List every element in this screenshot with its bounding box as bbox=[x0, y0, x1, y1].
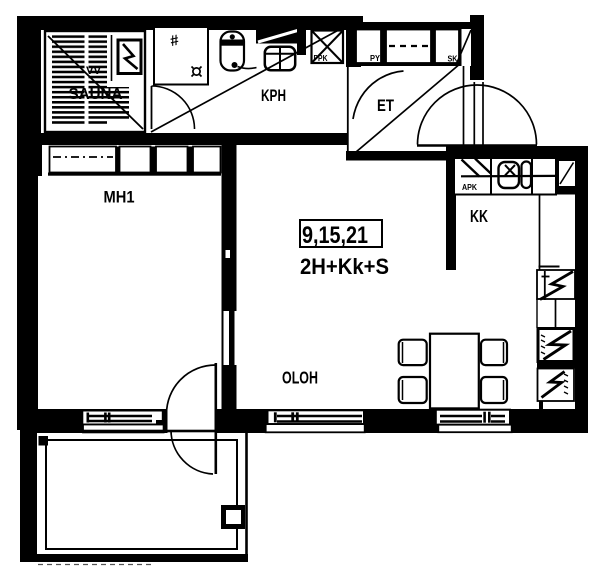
svg-text:SAUNA: SAUNA bbox=[69, 86, 123, 103]
svg-text:9,15,21: 9,15,21 bbox=[302, 222, 368, 249]
svg-text:ET: ET bbox=[377, 96, 394, 115]
svg-text:2H+Kk+S: 2H+Kk+S bbox=[300, 254, 389, 279]
svg-text:PPK: PPK bbox=[314, 54, 328, 63]
svg-text:VV: VV bbox=[86, 65, 102, 77]
svg-text:OLOH: OLOH bbox=[282, 368, 318, 388]
svg-text:SK: SK bbox=[448, 55, 458, 64]
svg-text:KK: KK bbox=[470, 206, 488, 226]
svg-text:APK: APK bbox=[462, 183, 477, 192]
svg-text:MH1: MH1 bbox=[104, 188, 135, 207]
svg-text:KPH: KPH bbox=[261, 86, 286, 105]
svg-text:PY: PY bbox=[370, 54, 381, 63]
